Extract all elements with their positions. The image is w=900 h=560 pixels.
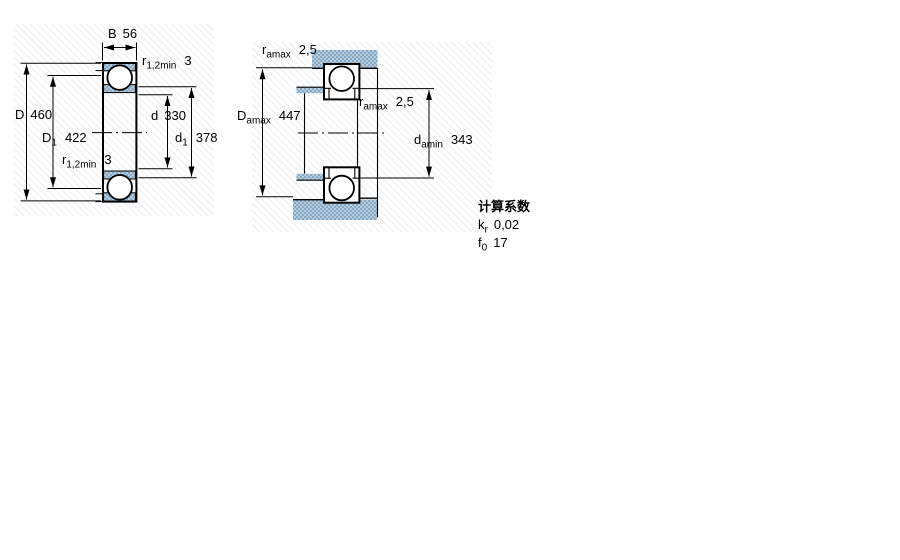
dim-value: 3 <box>184 53 191 68</box>
dim-symbol: D <box>15 107 24 122</box>
dim-symbol: d <box>151 108 158 123</box>
ball-bottom <box>329 176 354 201</box>
dim-subscript: 1 <box>51 138 57 149</box>
calculation-factors-title: 计算系数 <box>478 196 530 215</box>
dim-label-d: d330 <box>151 109 186 122</box>
dim-label-r12min-top: r1,2min3 <box>142 54 192 72</box>
factor-f0: f017 <box>478 236 508 254</box>
ball-top <box>107 65 132 90</box>
dim-value: 2,5 <box>396 94 414 109</box>
dim-subscript: amax <box>246 116 270 127</box>
shaft-shoulder-top <box>297 87 324 93</box>
technical-drawing-canvas: B56 r1,2min3 D460 D1422 r1,2min3 d330 d1… <box>0 0 900 560</box>
dim-label-r12min-bottom: r1,2min3 <box>62 153 112 171</box>
dim-subscript: 1,2min <box>146 61 176 72</box>
dim-label-damin: damin343 <box>414 133 473 151</box>
dim-value: 330 <box>164 108 186 123</box>
factor-value: 17 <box>493 235 507 250</box>
factor-subscript: r <box>485 225 488 236</box>
dim-label-D1: D1422 <box>42 131 87 149</box>
factor-value: 0,02 <box>494 217 519 232</box>
dim-label-Damax: Damax447 <box>237 109 301 127</box>
ball-top <box>329 66 354 91</box>
dim-value: 378 <box>196 130 218 145</box>
dim-subscript: amax <box>266 50 290 61</box>
dim-label-D: D460 <box>15 108 52 121</box>
dim-value: 460 <box>30 107 52 122</box>
dim-subscript: 1,2min <box>66 160 96 171</box>
dim-subscript: amax <box>363 102 387 113</box>
dim-value: 343 <box>451 132 473 147</box>
dim-subscript: 1 <box>182 138 188 149</box>
bearing-drawing-svg <box>0 0 900 560</box>
factor-subscript: 0 <box>482 243 488 254</box>
dim-symbol: B <box>108 26 117 41</box>
dim-symbol: D <box>237 108 246 123</box>
dim-value: 56 <box>123 26 137 41</box>
factor-kr: kr0,02 <box>478 218 519 236</box>
dim-label-ramax-top: ramax2,5 <box>262 43 317 61</box>
dim-symbol: D <box>42 130 51 145</box>
shaft-shoulder-bottom <box>297 174 324 180</box>
dim-value: 3 <box>104 152 111 167</box>
dim-subscript: amin <box>421 140 443 151</box>
dim-label-ramax-mid: ramax2,5 <box>359 95 414 113</box>
ball-bottom <box>107 175 132 200</box>
dim-label-B: B56 <box>108 27 137 40</box>
dim-value: 422 <box>65 130 87 145</box>
dim-value: 447 <box>279 108 301 123</box>
dim-value: 2,5 <box>299 42 317 57</box>
dim-label-d1: d1378 <box>175 131 218 149</box>
